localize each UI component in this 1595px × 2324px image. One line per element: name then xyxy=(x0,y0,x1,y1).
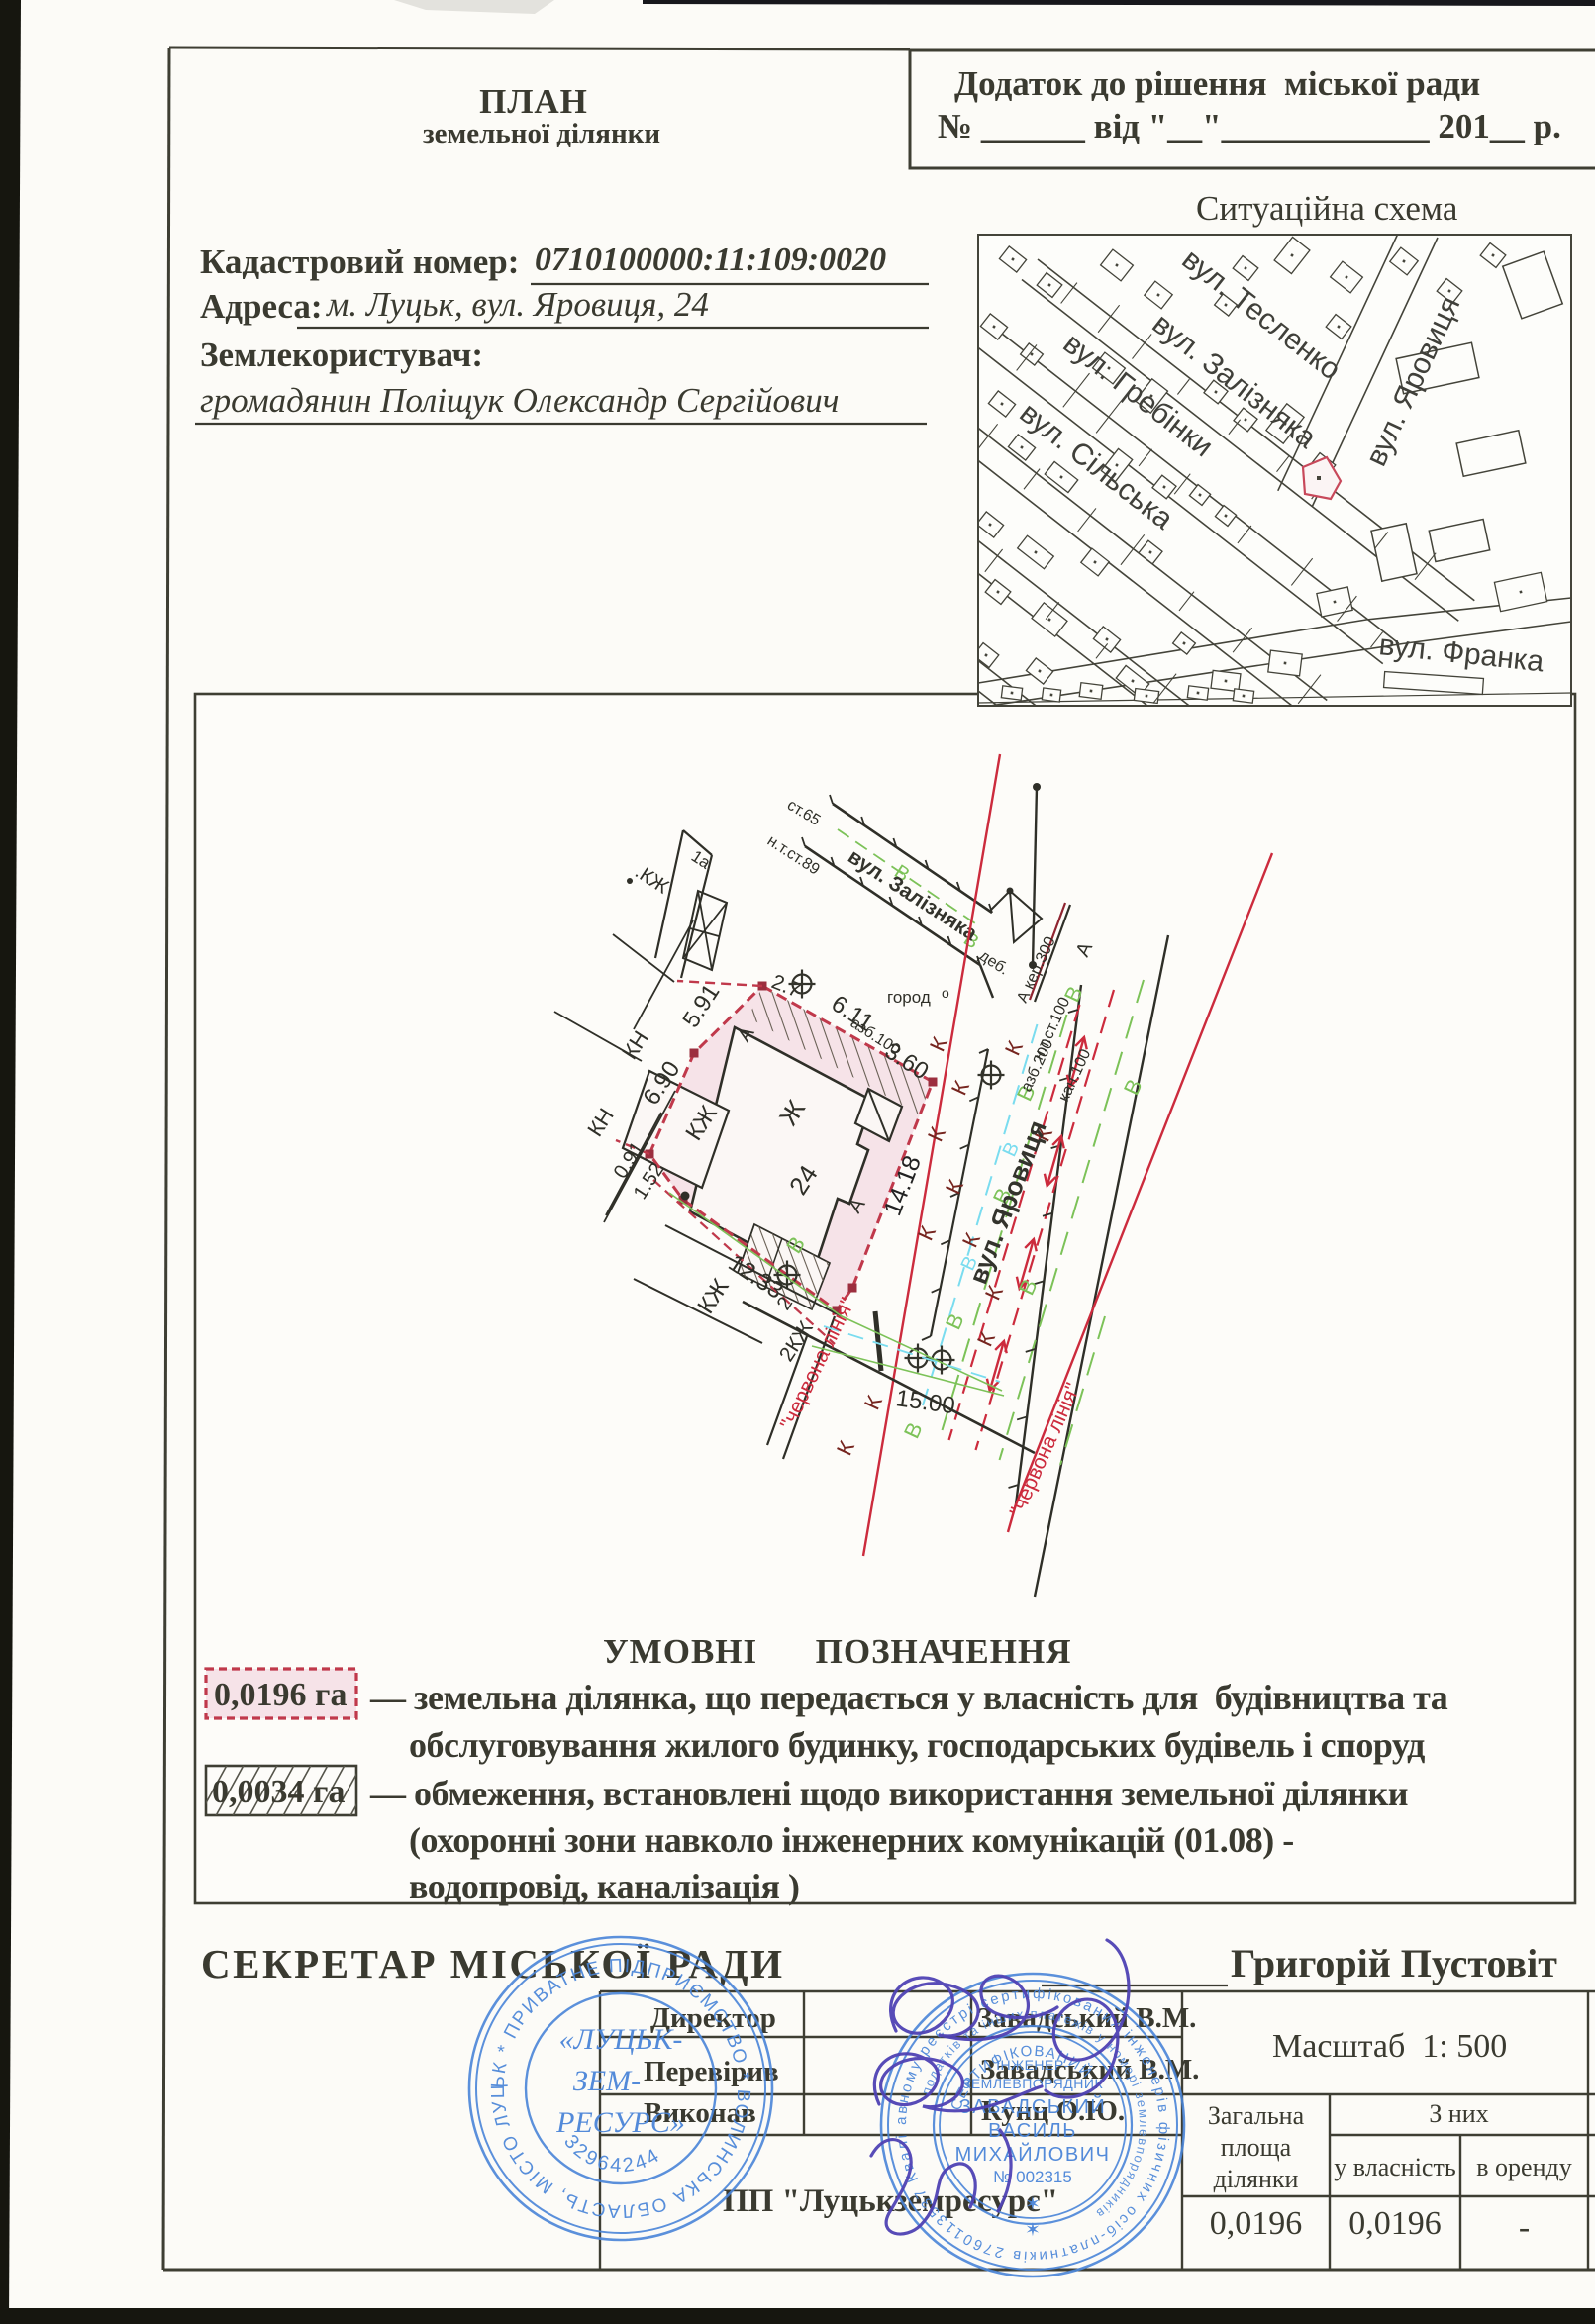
svg-text:ЬК * ПРИВАТНЕ ПІДПРИЄМСТВО * В: ЬК * ПРИВАТНЕ ПІДПРИЄМСТВО * ВОЛИНСЬКА О… xyxy=(0,0,753,2221)
svg-text:ІНЖЕНЕР-: ІНЖЕНЕР- xyxy=(996,2057,1069,2073)
svg-text:авному реєстрі сертифікованих: авному реєстрі сертифікованих інженерів … xyxy=(0,0,1172,2265)
svg-text:✶: ✶ xyxy=(1025,2194,1041,2215)
svg-text:ЗЕМ-: ЗЕМ- xyxy=(573,2065,641,2097)
svg-text:✶: ✶ xyxy=(1025,2220,1041,2241)
svg-text:ЗАВАДСЬКИЙ: ЗАВАДСЬКИЙ xyxy=(959,2094,1107,2118)
svg-text:МИХАЙЛОВИЧ: МИХАЙЛОВИЧ xyxy=(955,2142,1111,2166)
svg-text:№ 002315: № 002315 xyxy=(993,2168,1072,2186)
svg-text:«ЛУЦЬК-: «ЛУЦЬК- xyxy=(559,2023,683,2056)
